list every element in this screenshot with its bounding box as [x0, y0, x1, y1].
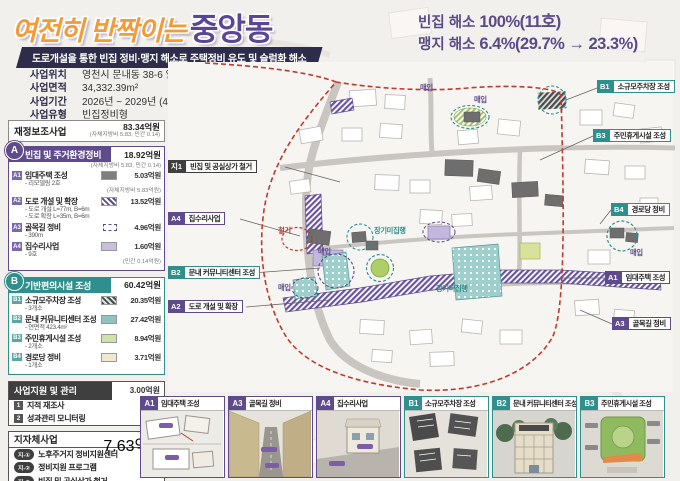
- page-title-accent: 중앙동: [190, 12, 273, 47]
- thumbnail-a1-rental-housing: A1임대주택 조성: [140, 396, 225, 478]
- list-item-b2: B2문내 커뮤니티센터 조성27.42억원 - 연면적 423.4m²: [12, 315, 161, 332]
- project-info: 사업위치영천시 문내동 38-6 일원 사업면적34,332.39m² 사업기간…: [30, 69, 184, 123]
- thumbnail-illustration-house: [317, 411, 399, 477]
- thumbnail-a4-home-repair: A4집수리사업: [316, 396, 401, 478]
- info-row-location: 사업위치영천시 문내동 38-6 일원: [30, 69, 184, 82]
- thumbnail-a3-alley: A3골목길 정비: [228, 396, 313, 478]
- list-item-a4: A4집수리사업1.60억원 - 9호 (민간 0.14억원): [12, 242, 161, 265]
- subsidy-label: 재정보조사업: [9, 124, 90, 138]
- info-row-area: 사업면적34,332.39m²: [30, 82, 184, 95]
- map-label-purchase: 매입: [278, 283, 291, 293]
- thumbnail-illustration-alley: [229, 411, 311, 477]
- site-map: [165, 60, 675, 395]
- section-a-note: (자체지방비 5.83, 민간 0.14): [9, 162, 164, 170]
- support-title: 사업지원 및 관리: [9, 382, 112, 400]
- municipal-title: 지자체사업: [9, 432, 103, 447]
- map-label-purchase: 매입: [474, 95, 487, 105]
- section-b-badge: B: [5, 272, 24, 291]
- callout-j1-demolition: 지1빈집 및 공실상가 철거: [168, 160, 257, 173]
- section-a-housing: A 빈집 및 주거환경정비 18.92억원 (자체지방비 5.83, 민간 0.…: [8, 146, 165, 271]
- map-label-demolish: 철거: [278, 226, 291, 236]
- thumbnail-b2-community-center: B2문내 커뮤니티센터 조성: [492, 396, 577, 478]
- thumbnail-illustration-park: [581, 411, 663, 477]
- list-item-b3: B3주민휴게시설 조성8.94억원 - 2개소: [12, 334, 161, 351]
- list-item-b4: B4경로당 정비3.71억원 - 1개소: [12, 353, 161, 370]
- section-a-value: 18.92억원: [111, 147, 164, 162]
- list-item-a1: A1임대주택 조성5.03억원 - 리모델링 2호 (자체지방비 5.83억원): [12, 171, 161, 194]
- legend-swatch-a3: [103, 224, 117, 231]
- list-item-b1: B1소규모주차장 조성20.35억원 - 3개소: [12, 296, 161, 313]
- callout-a3-alley: A3골목길 정비: [612, 317, 671, 330]
- map-label-longterm: 장기미집행: [436, 284, 468, 294]
- section-a-badge: A: [5, 141, 24, 160]
- callout-b4-senior-center: B4경로당 정비: [611, 203, 670, 216]
- thumbnail-strip: A1임대주택 조성 A3골목길 정비: [140, 396, 665, 478]
- stat-vacant-house: 빈집 해소 100%(11호): [418, 12, 638, 34]
- legend-swatch-a4: [101, 242, 117, 251]
- map-label-purchase: 매입: [318, 247, 331, 257]
- callout-b2-community-center: B2문내 커뮤니티센터 조성: [168, 266, 260, 279]
- callout-a4-home-repair: A4집수리사업: [168, 212, 225, 225]
- info-row-period: 사업기간2026년 ~ 2029년 (4년): [30, 96, 184, 109]
- legend-swatch-a1: [101, 171, 117, 180]
- thumbnail-b3-rest-facility: B3주민휴게시설 조성: [580, 396, 665, 478]
- page-title-light: 여전히 반짝이는: [12, 16, 185, 46]
- map-label-longterm: 장기미집행: [374, 226, 406, 236]
- subsidy-note: (자체지방비 5.83, 민간 0.14): [90, 132, 160, 139]
- key-stats: 빈집 해소 100%(11호) 맹지 해소 6.4%(29.7% → 23.3%…: [418, 12, 638, 56]
- map-label-purchase: 매입: [420, 83, 433, 93]
- poster-page: 여전히 반짝이는 중앙동 도로개설을 통한 빈집 정비·맹지 해소로 주택정비 …: [0, 0, 680, 481]
- page-title: 여전히 반짝이는 중앙동: [12, 4, 272, 49]
- thumbnail-illustration-rental: [141, 411, 223, 477]
- subsidy-box: 재정보조사업 83.34억원 (자체지방비 5.83, 민간 0.14): [8, 120, 165, 142]
- section-b-value: 60.42억원: [111, 278, 164, 293]
- thumbnail-illustration-parking: [405, 411, 487, 477]
- callout-a2-road: A2도로 개설 및 확장: [168, 300, 243, 313]
- thumbnail-b1-parking: B1소규모주차장 조성: [404, 396, 489, 478]
- section-a-title: 빈집 및 주거환경정비: [9, 147, 111, 162]
- subsidy-value: 83.34억원: [90, 123, 160, 132]
- map-label-purchase: 매입: [630, 248, 643, 258]
- stat-landlocked: 맹지 해소 6.4%(29.7% → 23.3%): [418, 34, 638, 56]
- legend-swatch-a2: [101, 197, 117, 206]
- list-item-a2: A2도로 개설 및 확장13.52억원 - 도로 개설 L=77m, B=6m …: [12, 197, 161, 221]
- legend-swatch-b2: [101, 315, 117, 324]
- callout-b3-rest-facility: B3주민휴게시설 조성: [593, 129, 671, 142]
- callout-a1-rental-housing: A1임대주택 조성: [605, 271, 670, 284]
- section-b-infrastructure: B 기반편의시설 조성 60.42억원 B1소규모주차장 조성20.35억원 -…: [8, 277, 165, 375]
- legend-swatch-b4: [101, 353, 117, 362]
- legend-swatch-b3: [101, 334, 117, 343]
- legend-swatch-b1: [101, 296, 117, 305]
- list-item-a3: A3골목길 정비4.96억원 - 390m: [12, 223, 161, 240]
- callout-b1-parking: B1소규모주차장 조성: [597, 80, 675, 93]
- thumbnail-illustration-center: [493, 411, 575, 477]
- section-b-title: 기반편의시설 조성: [9, 278, 111, 293]
